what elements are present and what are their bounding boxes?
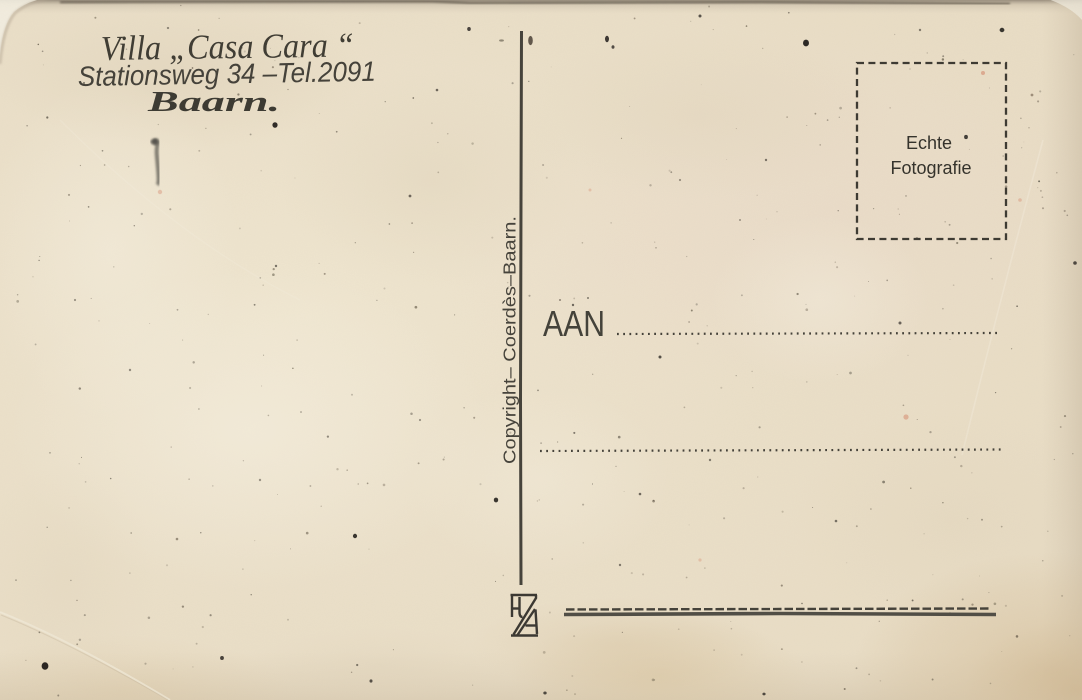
- svg-text:Echte: Echte: [906, 133, 952, 153]
- svg-text:Copyright– Coerdès–Baarn.: Copyright– Coerdès–Baarn.: [500, 216, 520, 464]
- svg-text:Fotografie: Fotografie: [890, 158, 971, 178]
- svg-text:AAN: AAN: [543, 303, 605, 344]
- svg-text:Baarn.: Baarn.: [146, 86, 280, 118]
